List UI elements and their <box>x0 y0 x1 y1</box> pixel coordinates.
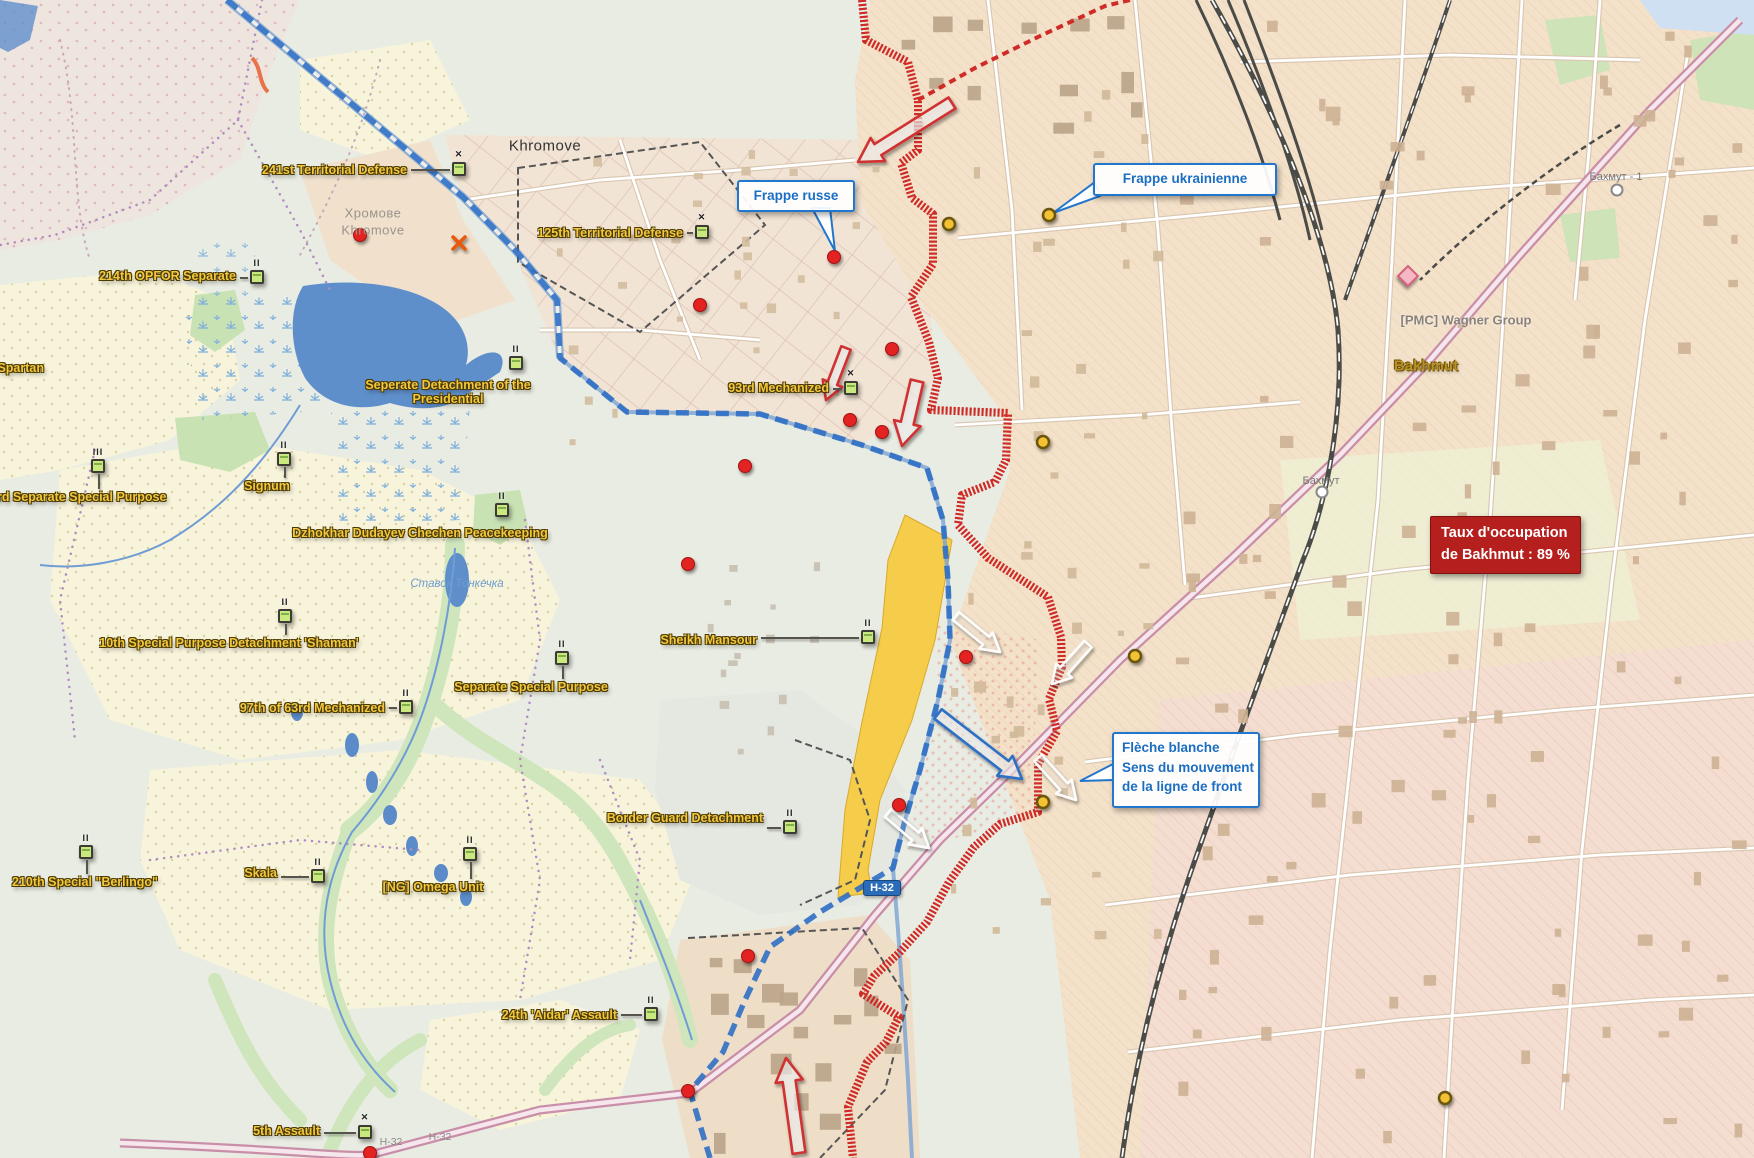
russian-strike-dot <box>886 343 899 356</box>
bakhmut-situation-map[interactable]: KhromoveХромовеKhromove[PMC] Wagner Grou… <box>0 0 1754 1158</box>
ukrainian-strike-dot <box>1037 796 1049 808</box>
callout-frappe-russe-text: Frappe russe <box>754 188 839 203</box>
callout-frappe-ukrainienne-text: Frappe ukrainienne <box>1123 171 1248 186</box>
russian-strike-dot <box>682 558 695 571</box>
callout-fleche-line2: Sens du mouvement <box>1122 758 1250 778</box>
road-ref-badge-h32: H-32 <box>863 880 901 896</box>
russian-strike-dot <box>876 426 889 439</box>
russian-strike-dot <box>844 414 857 427</box>
russian-strike-dot <box>828 251 841 264</box>
russian-strike-dot <box>739 460 752 473</box>
callout-frappe-russe: Frappe russe <box>737 180 855 212</box>
ukrainian-strike-dot <box>1129 650 1141 662</box>
callout-fleche-blanche: Flèche blanche Sens du mouvement de la l… <box>1112 732 1260 808</box>
occupation-rate-box: Taux d'occupation de Bakhmut : 89 % <box>1430 516 1581 574</box>
russian-strike-dot <box>960 651 973 664</box>
ukrainian-strike-dot <box>1037 436 1049 448</box>
base-map <box>0 0 1754 1158</box>
russian-strike-dot <box>694 299 707 312</box>
occupation-line2: de Bakhmut : 89 % <box>1441 545 1570 567</box>
russian-strike-dot <box>893 799 906 812</box>
ukrainian-strike-dot <box>1439 1092 1451 1104</box>
railway-station-icon <box>1317 487 1328 498</box>
russian-strike-dot <box>364 1147 377 1158</box>
ukrainian-strike-dot <box>943 218 955 230</box>
russian-strike-dot <box>742 950 755 963</box>
russian-strike-dot <box>354 229 367 242</box>
russian-strike-dot <box>682 1085 695 1098</box>
railway-station-icon <box>1612 185 1623 196</box>
ukrainian-strike-dot <box>1043 209 1055 221</box>
callout-frappe-ukrainienne: Frappe ukrainienne <box>1093 163 1277 196</box>
occupation-line1: Taux d'occupation <box>1441 523 1570 545</box>
callout-fleche-line3: de la ligne de front <box>1122 777 1250 797</box>
callout-fleche-line1: Flèche blanche <box>1122 738 1250 758</box>
